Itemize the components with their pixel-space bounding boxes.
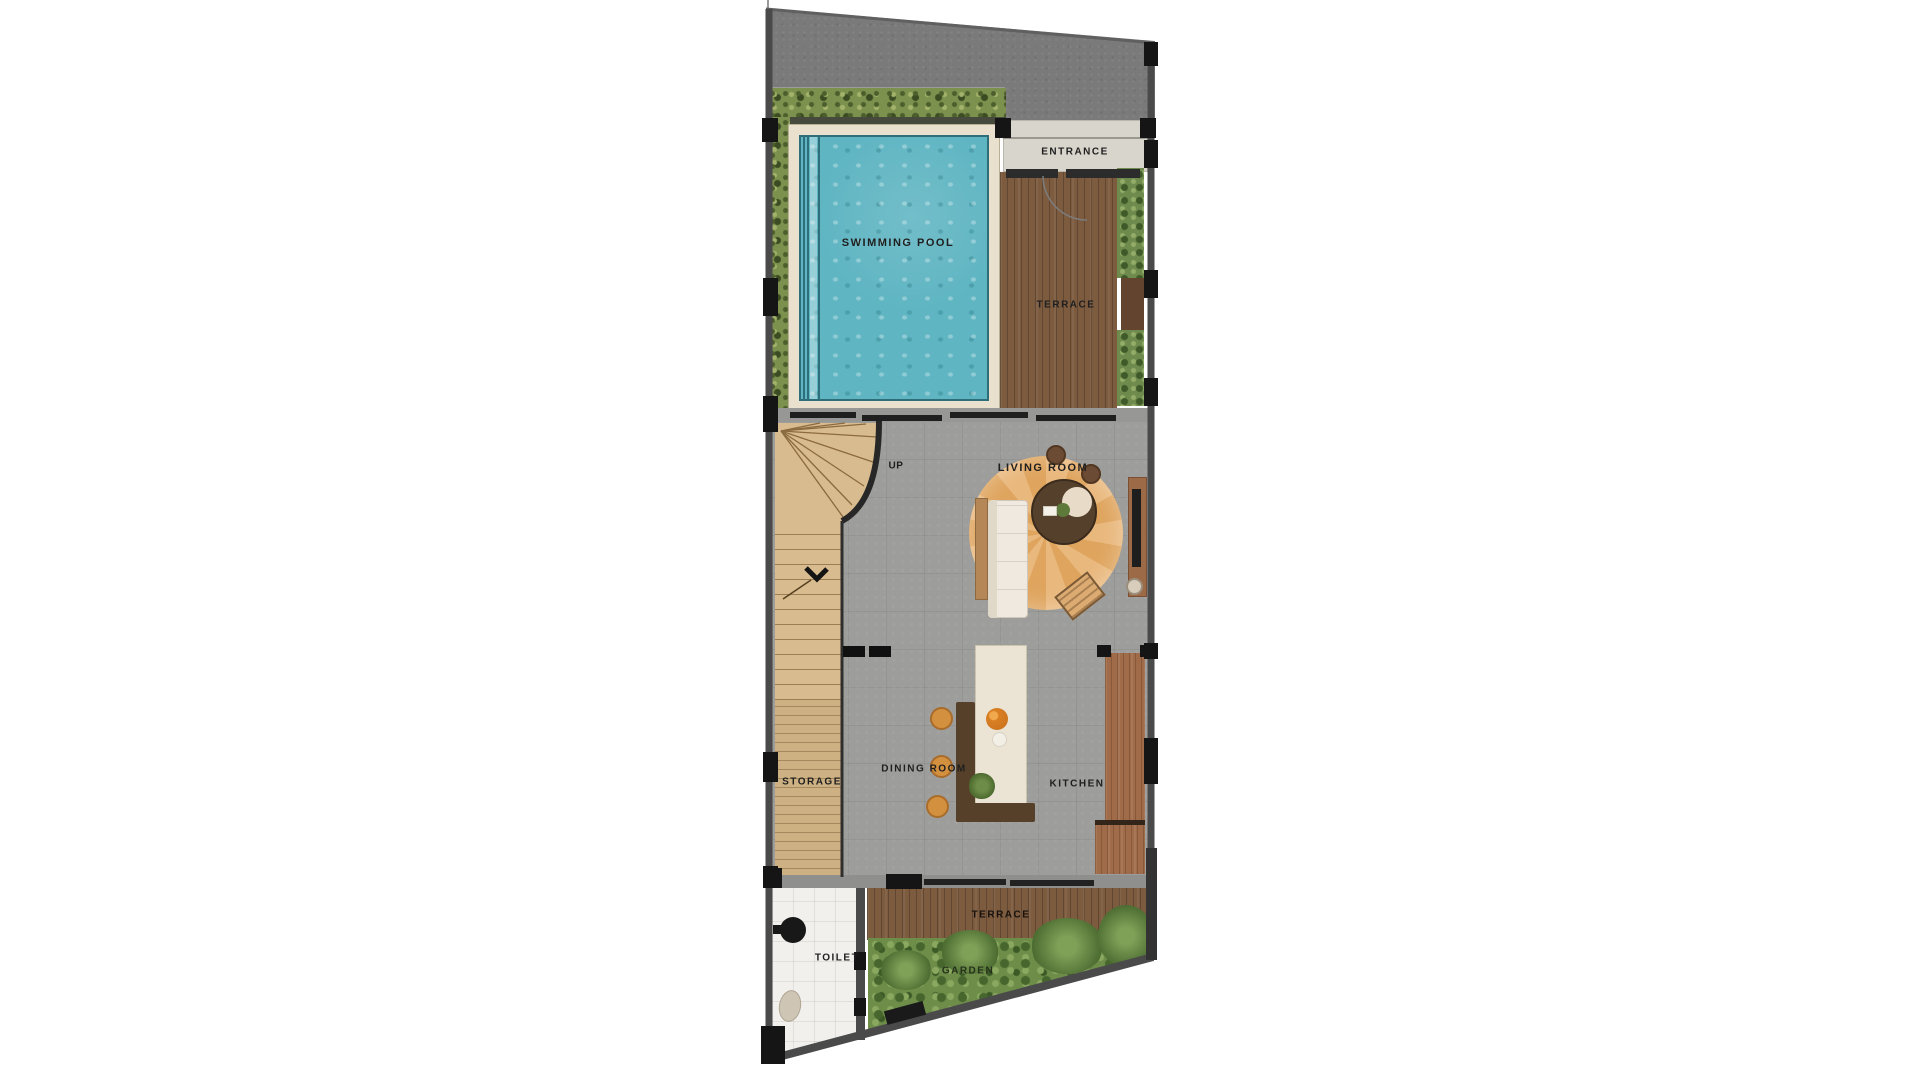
- label-dining-room: DINING ROOM: [881, 764, 966, 775]
- plate: [992, 732, 1007, 747]
- rear-wall-band: [766, 875, 1152, 888]
- storage-floor: [775, 700, 841, 878]
- table-plant: [1056, 503, 1070, 517]
- label-kitchen: KITCHEN: [1050, 779, 1105, 790]
- planter-bushes: [1117, 168, 1144, 278]
- label-toilet: TOILET: [815, 953, 859, 964]
- survey-tick-mark: [767, 0, 769, 9]
- tv: [1132, 489, 1141, 567]
- kitchen-counter-lower: [1095, 825, 1145, 874]
- table-plant: [969, 773, 995, 799]
- basin-tap: [773, 925, 782, 934]
- entrance-step-line: [1003, 137, 1148, 139]
- label-garden: GARDEN: [942, 966, 994, 977]
- garden-bush: [880, 950, 932, 990]
- table-papers: [1043, 506, 1057, 516]
- dining-chair: [926, 795, 949, 818]
- pool-lane-line: [803, 137, 805, 399]
- dining-chair: [930, 707, 953, 730]
- pool-shallow-ledge: [810, 137, 817, 399]
- sofa-console: [975, 498, 988, 600]
- label-storage: STORAGE: [782, 777, 842, 788]
- label-living-room: LIVING ROOM: [998, 462, 1088, 474]
- pool-lane-line: [807, 137, 809, 399]
- dining-bench: [956, 803, 1035, 822]
- label-entrance: ENTRANCE: [1041, 147, 1109, 158]
- hedge-strip-left: [766, 117, 790, 412]
- planter-bushes: [1117, 330, 1144, 406]
- flower-centerpiece: [986, 708, 1008, 730]
- garden-bush: [1030, 918, 1104, 974]
- side-chair: [1126, 578, 1143, 595]
- hedge-strip-top: [766, 88, 1006, 119]
- label-terrace-upper: TERRACE: [1037, 300, 1096, 311]
- swimming-pool-water: [799, 135, 989, 401]
- floor-plan-canvas: SWIMMING POOL ENTRANCE TERRACE LIVING RO…: [0, 0, 1920, 1080]
- staircase-straight-run: [775, 523, 841, 700]
- kitchen-counter: [1105, 653, 1145, 822]
- pool-lane-line: [818, 137, 820, 399]
- planter-wood-panel: [1121, 278, 1144, 330]
- toilet-room-floor: [772, 888, 858, 1062]
- label-swimming-pool: SWIMMING POOL: [842, 237, 954, 249]
- label-terrace-lower: TERRACE: [972, 910, 1031, 921]
- sliding-door-track: [772, 408, 1152, 422]
- terrace-upper-deck: [1000, 172, 1117, 410]
- sofa-backrest: [988, 500, 997, 618]
- toilet-wall: [856, 888, 865, 1040]
- washbasin: [780, 917, 806, 943]
- label-up: UP: [889, 461, 904, 472]
- garden-bush: [1098, 905, 1154, 967]
